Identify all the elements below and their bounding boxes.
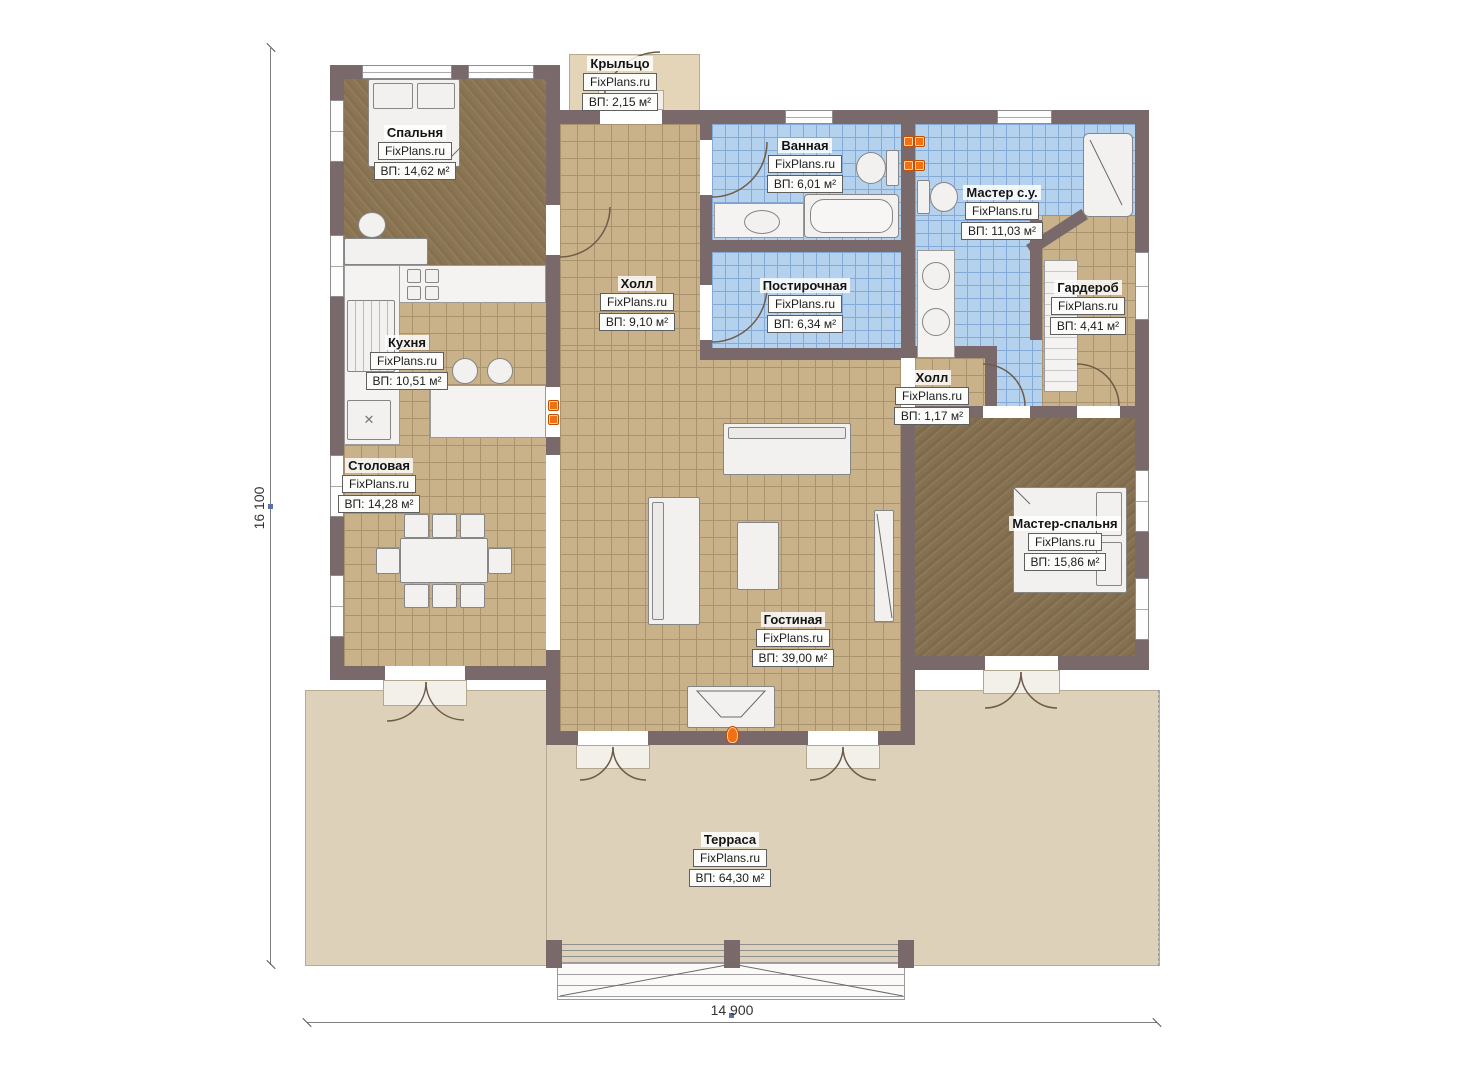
threshold-living-1 — [576, 745, 650, 769]
wall-mb-top-b — [1030, 406, 1077, 418]
terrace-post — [898, 940, 914, 968]
wall-mb-top-c — [1120, 406, 1149, 418]
vanity-sink — [922, 308, 950, 336]
room-label-wardrobe: Гардероб FixPlans.ru ВП: 4,41 м² — [1035, 280, 1141, 335]
bed-pillow — [373, 83, 413, 109]
door-opening-bathroom — [700, 140, 712, 195]
vanity-sink — [922, 262, 950, 290]
shower-tray — [1083, 133, 1133, 217]
tv-unit — [874, 510, 894, 622]
room-name: Кухня — [385, 335, 429, 350]
dimension-label-horizontal: 14 900 — [700, 1002, 764, 1018]
radiator — [903, 136, 914, 147]
area-box: ВП: 39,00 м² — [752, 649, 835, 667]
area-box: ВП: 14,28 м² — [338, 495, 421, 513]
dining-chair — [404, 514, 429, 538]
room-label-living: Гостиная FixPlans.ru ВП: 39,00 м² — [736, 612, 850, 667]
threshold-living-2 — [806, 745, 880, 769]
dimension-tick — [266, 960, 275, 969]
terrace-edge-dashed — [1158, 690, 1159, 966]
stove-burner — [425, 269, 439, 283]
room-label-bathroom: Ванная FixPlans.ru ВП: 6,01 м² — [748, 138, 862, 193]
dimension-line-horizontal — [307, 1022, 1157, 1023]
sofa-vertical-back — [652, 502, 664, 620]
threshold-mb — [983, 670, 1060, 694]
window-kitchen-left — [330, 235, 344, 297]
door-opening-living-terrace-1 — [578, 731, 648, 745]
terrace-floor-right — [915, 690, 1160, 966]
room-name: Крыльцо — [587, 56, 652, 71]
window-master-bath-top — [997, 110, 1052, 124]
room-name: Мастер-спальня — [1009, 516, 1120, 531]
area-box: ВП: 4,41 м² — [1050, 317, 1126, 335]
area-box: ВП: 9,10 м² — [599, 313, 675, 331]
dining-chair — [376, 548, 400, 574]
door-opening-living-terrace-2 — [808, 731, 878, 745]
door-opening-mb-1 — [983, 406, 1030, 418]
dining-chair — [404, 584, 429, 608]
dining-chair — [488, 548, 512, 574]
floor-plan-canvas: ✕ — [0, 0, 1474, 1080]
fireplace — [687, 686, 775, 728]
kitchen-sink: ✕ — [347, 400, 391, 440]
watermark-box: FixPlans.ru — [600, 293, 674, 311]
room-name: Постирочная — [760, 278, 850, 293]
desk-chair — [358, 212, 386, 238]
window-dining-left-2 — [330, 575, 344, 637]
door-opening-laundry — [700, 285, 712, 340]
door-opening-kitchen — [546, 387, 560, 437]
dimension-marker — [268, 504, 273, 509]
stove-burner — [407, 286, 421, 300]
bathroom-sink — [744, 210, 780, 234]
dimension-tick — [266, 43, 275, 52]
area-box: ВП: 6,34 м² — [767, 315, 843, 333]
room-name: Спальня — [384, 125, 446, 140]
room-name: Ванная — [778, 138, 831, 153]
area-box: ВП: 2,15 м² — [582, 93, 658, 111]
stove-burner — [425, 286, 439, 300]
door-opening-mb-terrace — [985, 656, 1058, 670]
room-name: Гостиная — [761, 612, 826, 627]
watermark-box: FixPlans.ru — [370, 352, 444, 370]
watermark-box: FixPlans.ru — [693, 849, 767, 867]
watermark-box: FixPlans.ru — [378, 142, 452, 160]
watermark-box: FixPlans.ru — [895, 387, 969, 405]
wall-central-b — [901, 418, 915, 745]
bed-pillow — [417, 83, 455, 109]
room-label-kitchen: Кухня FixPlans.ru ВП: 10,51 м² — [350, 335, 464, 390]
room-label-master-bedroom: Мастер-спальня FixPlans.ru ВП: 15,86 м² — [1003, 516, 1127, 571]
room-label-bedroom: Спальня FixPlans.ru ВП: 14,62 м² — [358, 125, 472, 180]
area-box: ВП: 1,17 м² — [894, 407, 970, 425]
area-box: ВП: 10,51 м² — [366, 372, 449, 390]
dining-chair — [432, 514, 457, 538]
watermark-box: FixPlans.ru — [965, 202, 1039, 220]
sofa-horizontal-back — [728, 427, 846, 439]
toilet-tank — [917, 180, 930, 214]
wall-bedroom-hall-b — [546, 255, 560, 387]
door-opening-dining-terrace — [385, 666, 465, 680]
living-floor — [560, 350, 901, 731]
radiator — [903, 160, 914, 171]
room-label-terrace: Терраса FixPlans.ru ВП: 64,30 м² — [672, 832, 788, 887]
area-box: ВП: 11,03 м² — [961, 222, 1043, 240]
terrace-post — [546, 940, 562, 968]
room-label-laundry: Постирочная FixPlans.ru ВП: 6,34 м² — [748, 278, 862, 333]
dining-table — [400, 538, 488, 583]
watermark-box: FixPlans.ru — [768, 295, 842, 313]
room-name: Холл — [618, 276, 657, 291]
watermark-box: FixPlans.ru — [583, 73, 657, 91]
door-opening-entry — [600, 110, 662, 124]
room-label-porch: Крыльцо FixPlans.ru ВП: 2,15 м² — [562, 56, 678, 111]
desk — [344, 238, 428, 265]
door-opening-bedroom — [546, 205, 560, 255]
island-stool — [487, 358, 513, 384]
watermark-box: FixPlans.ru — [756, 629, 830, 647]
kitchen-counter-top — [399, 265, 546, 303]
room-name: Гардероб — [1054, 280, 1121, 295]
window-bathroom-top — [785, 110, 833, 124]
watermark-box: FixPlans.ru — [768, 155, 842, 173]
room-name: Столовая — [345, 458, 413, 473]
area-box: ВП: 6,01 м² — [767, 175, 843, 193]
dining-chair — [460, 584, 485, 608]
room-label-master-bath: Мастер с.у. FixPlans.ru ВП: 11,03 м² — [945, 185, 1059, 240]
radiator — [548, 414, 559, 425]
wall-kitchen-hall-c — [546, 437, 560, 455]
door-opening-dining-living — [546, 455, 560, 650]
radiator — [914, 160, 925, 171]
area-box: ВП: 14,62 м² — [374, 162, 457, 180]
wall-bedroom-hall-a — [546, 65, 560, 205]
kitchen-island — [430, 385, 546, 438]
wall-hall-wet-a — [700, 124, 712, 140]
window-mb-right-1 — [1135, 470, 1149, 532]
watermark-box: FixPlans.ru — [342, 475, 416, 493]
window-bedroom-left — [330, 100, 344, 162]
terrace-floor-left — [305, 690, 547, 966]
fireplace-flame-icon — [726, 726, 739, 744]
room-label-dining: Столовая FixPlans.ru ВП: 14,28 м² — [322, 458, 436, 513]
toilet-tank — [886, 150, 899, 186]
watermark-box: FixPlans.ru — [1028, 533, 1102, 551]
room-label-hall: Холл FixPlans.ru ВП: 9,10 м² — [580, 276, 694, 331]
bathtub-inner — [810, 199, 893, 233]
room-name: Терраса — [701, 832, 759, 847]
dining-chair — [432, 584, 457, 608]
coffee-table — [737, 522, 779, 590]
window-mb-right-2 — [1135, 578, 1149, 640]
threshold-dining — [383, 680, 467, 706]
terrace-post — [724, 940, 740, 968]
window-bedroom-top-1 — [362, 65, 452, 79]
room-label-hall-small: Холл FixPlans.ru ВП: 1,17 м² — [883, 370, 981, 425]
room-name: Мастер с.у. — [963, 185, 1040, 200]
stove-burner — [407, 269, 421, 283]
watermark-box: FixPlans.ru — [1051, 297, 1125, 315]
radiator — [914, 136, 925, 147]
area-box: ВП: 15,86 м² — [1024, 553, 1107, 571]
door-opening-mb-2 — [1077, 406, 1120, 418]
wall-laundry-bottom — [700, 348, 915, 360]
window-bedroom-top-2 — [468, 65, 534, 79]
dimension-label-vertical: 16 100 — [251, 478, 267, 538]
dining-chair — [460, 514, 485, 538]
radiator — [548, 400, 559, 411]
room-name: Холл — [913, 370, 952, 385]
area-box: ВП: 64,30 м² — [689, 869, 772, 887]
wall-hall-wet-b — [700, 195, 712, 285]
wall-bath-laundry — [712, 240, 901, 252]
